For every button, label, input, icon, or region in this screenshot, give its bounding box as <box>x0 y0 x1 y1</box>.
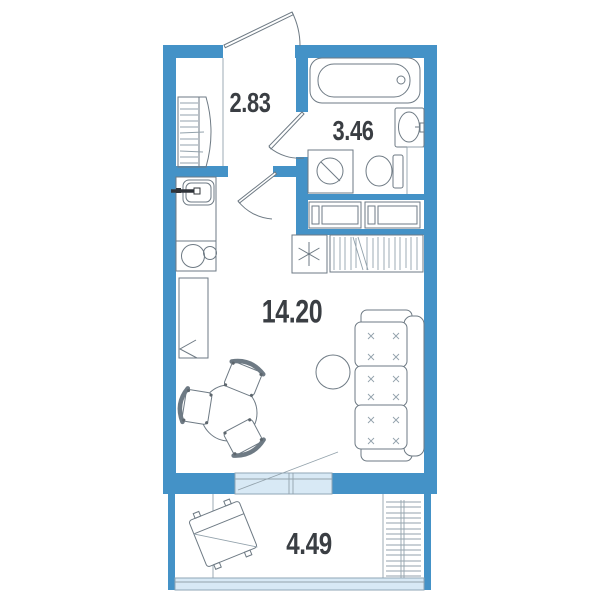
drying-rack <box>386 500 421 578</box>
wardrobe <box>330 235 423 272</box>
floor-plan: 2.83 3.46 14.20 4.49 <box>0 0 600 600</box>
bathtub <box>310 58 420 103</box>
kitchen-cabinet <box>179 278 208 358</box>
built-in-closet <box>309 202 420 228</box>
balcony-area-label: 4.49 <box>286 526 332 562</box>
bathroom-door <box>269 112 304 158</box>
living-room-area-label: 14.20 <box>262 294 323 331</box>
washbasin <box>395 108 424 147</box>
hallway-area-label: 2.83 <box>230 87 271 119</box>
hallway-closet <box>178 58 223 167</box>
refrigerator <box>292 235 327 273</box>
toilet <box>366 147 424 194</box>
balcony-window <box>235 473 332 494</box>
entrance-door <box>224 12 300 48</box>
kitchen-stove <box>176 241 217 271</box>
kitchen-sink <box>171 177 216 241</box>
pouf <box>316 355 350 389</box>
room-door <box>238 172 277 219</box>
dining-chair <box>178 388 214 426</box>
balcony-glazing <box>175 578 424 590</box>
sofa <box>355 310 424 461</box>
bathroom-area-label: 3.46 <box>333 115 374 147</box>
washing-machine <box>308 150 353 193</box>
balcony-chair <box>187 496 260 572</box>
